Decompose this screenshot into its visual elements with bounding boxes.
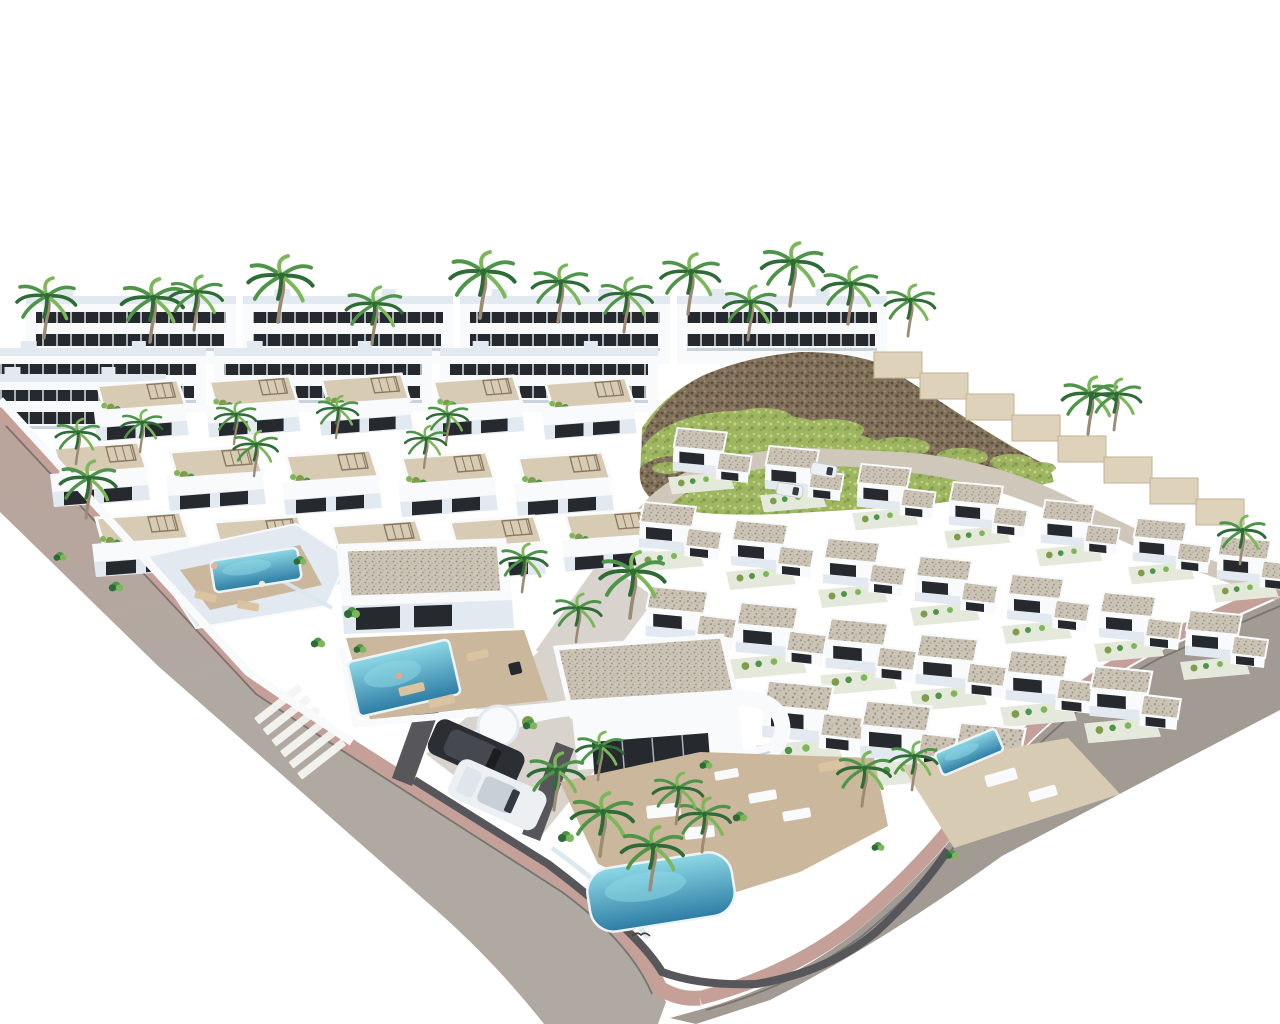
- villa-gravel-roof: [1212, 536, 1280, 603]
- retaining-wall-step: [1104, 457, 1152, 483]
- retaining-wall-step: [874, 352, 922, 378]
- scrub-patch: [732, 408, 792, 428]
- villa-rooftop-terrace: [514, 452, 614, 517]
- scrub-patch: [1024, 462, 1056, 474]
- retaining-wall-step: [1196, 499, 1244, 525]
- retaining-wall-step: [1012, 415, 1060, 441]
- villa-rooftop-terrace: [430, 376, 525, 438]
- villa-rooftop-terrace: [282, 450, 382, 515]
- villa-rooftop-terrace: [398, 452, 498, 517]
- person: [211, 563, 217, 569]
- person: [259, 581, 265, 587]
- villa-rooftop-terrace: [166, 446, 266, 511]
- retaining-wall-step: [1058, 436, 1106, 462]
- scrub-patch: [796, 419, 864, 441]
- person: [396, 673, 402, 679]
- retaining-wall-step: [920, 373, 968, 399]
- retaining-wall-step: [1150, 478, 1198, 504]
- gravel-roof: [346, 545, 502, 597]
- glazing: [356, 606, 400, 630]
- retaining-wall-step: [966, 394, 1014, 420]
- villa-rooftop-terrace: [542, 378, 637, 440]
- architectural-render-image: Aerial 3D architectural rendering of a w…: [0, 0, 1280, 1024]
- apartment-block: [677, 289, 887, 364]
- glazing: [414, 605, 452, 628]
